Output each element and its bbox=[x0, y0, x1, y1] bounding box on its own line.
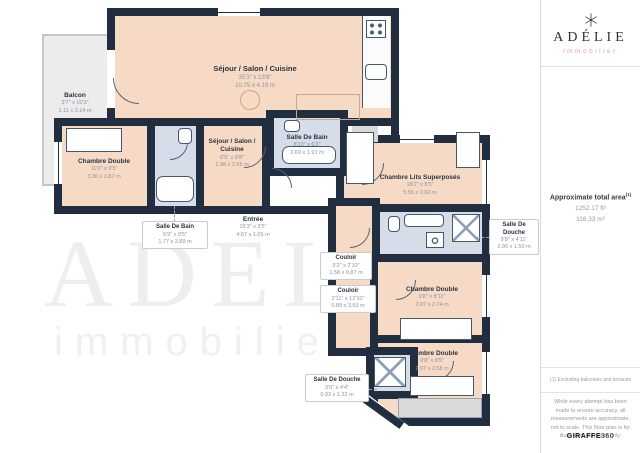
bathtub bbox=[156, 176, 194, 202]
toilet bbox=[178, 128, 192, 144]
total-area-title: Approximate total area(1) bbox=[541, 192, 640, 201]
room-label-chambre-double-mid: Chambre Double 9'8" x 8'11" 2.97 x 2.74 … bbox=[380, 286, 484, 309]
brand-tagline: immobilier bbox=[563, 48, 618, 55]
room-label-salle-de-bain-top: Salle De Bain 8'10" x 6'3" 2.69 x 1.91 m bbox=[276, 134, 338, 157]
brand-name: ADÉLIE bbox=[553, 30, 628, 46]
label-connector bbox=[369, 389, 377, 390]
toilet bbox=[388, 216, 400, 232]
bed bbox=[410, 376, 474, 396]
terrace-strip bbox=[398, 398, 482, 418]
kitchen-sink bbox=[365, 64, 387, 80]
room-label-salle-de-douche-right: Salle De Douche 9'8" x 4'11" 2.96 x 1.50… bbox=[489, 219, 539, 255]
bathroom-counter bbox=[404, 214, 444, 227]
shower bbox=[452, 214, 480, 242]
sidebar: ADÉLIE immobilier Approximate total area… bbox=[540, 0, 640, 453]
room-label-salle-de-douche-bottom: Salle De Douche 3'0" x 4'4" 0.93 x 1.32 … bbox=[305, 374, 369, 402]
floorplan-page: ADELIE immobilier bbox=[0, 0, 640, 453]
total-area-block: Approximate total area(1) 1252.17 ft² 11… bbox=[541, 192, 640, 223]
room-label-sejour-main: Séjour / Salon / Cuisine 35'3" x 13'8" 1… bbox=[170, 64, 340, 90]
snowflake-icon bbox=[583, 12, 599, 28]
bed bbox=[400, 318, 472, 340]
room-label-entree: Entrée 15'3" x 3'5" 4.67 x 1.05 m bbox=[214, 216, 292, 239]
room-label-salle-de-bain-left: Salle De Bain 5'9" x 9'5" 1.77 x 2.89 m bbox=[142, 221, 208, 249]
stove-icon bbox=[366, 20, 386, 38]
total-area-metric: 116.33 m² bbox=[541, 216, 640, 223]
giraffe360-credit: GIRAFFE360 bbox=[541, 433, 640, 440]
room-label-chambre-double-left: Chambre Double 11'0" x 9'5" 3.36 x 2.87 … bbox=[58, 158, 150, 181]
room-label-couloir-2: Couloir 2'11" x 12'10" 0.89 x 3.93 m bbox=[320, 285, 376, 313]
window bbox=[218, 8, 260, 16]
label-connector bbox=[477, 237, 489, 238]
room-label-balcon: Balcon 3'7" x 10'3" 1.11 x 3.14 m bbox=[42, 92, 108, 115]
sink bbox=[284, 120, 300, 132]
room-label-chambre-lits-superposes: Chambre Lits Superposés 18'2" x 8'5" 5.5… bbox=[346, 174, 494, 197]
sofa bbox=[296, 94, 360, 120]
total-area-imperial: 1252.17 ft² bbox=[541, 205, 640, 212]
label-connector bbox=[174, 206, 175, 222]
wardrobe bbox=[456, 132, 480, 168]
room-label-sejour-small: Séjour / Salon / Cuisine 6'5" x 8'8" 1.9… bbox=[208, 138, 256, 170]
washing-machine-icon bbox=[426, 232, 444, 248]
brand-logo: ADÉLIE immobilier bbox=[541, 0, 640, 67]
room-label-couloir-1: Couloir 5'2" x 2'10" 1.58 x 0.87 m bbox=[320, 252, 372, 280]
bed bbox=[66, 128, 122, 152]
window bbox=[400, 135, 434, 143]
room-label-chambre-double-bottom: Chambre Double 9'8" x 8'5" 2.97 x 2.58 m bbox=[380, 350, 484, 373]
area-footnote: (1) Excluding balconies and terraces bbox=[541, 367, 640, 393]
table bbox=[240, 90, 260, 110]
